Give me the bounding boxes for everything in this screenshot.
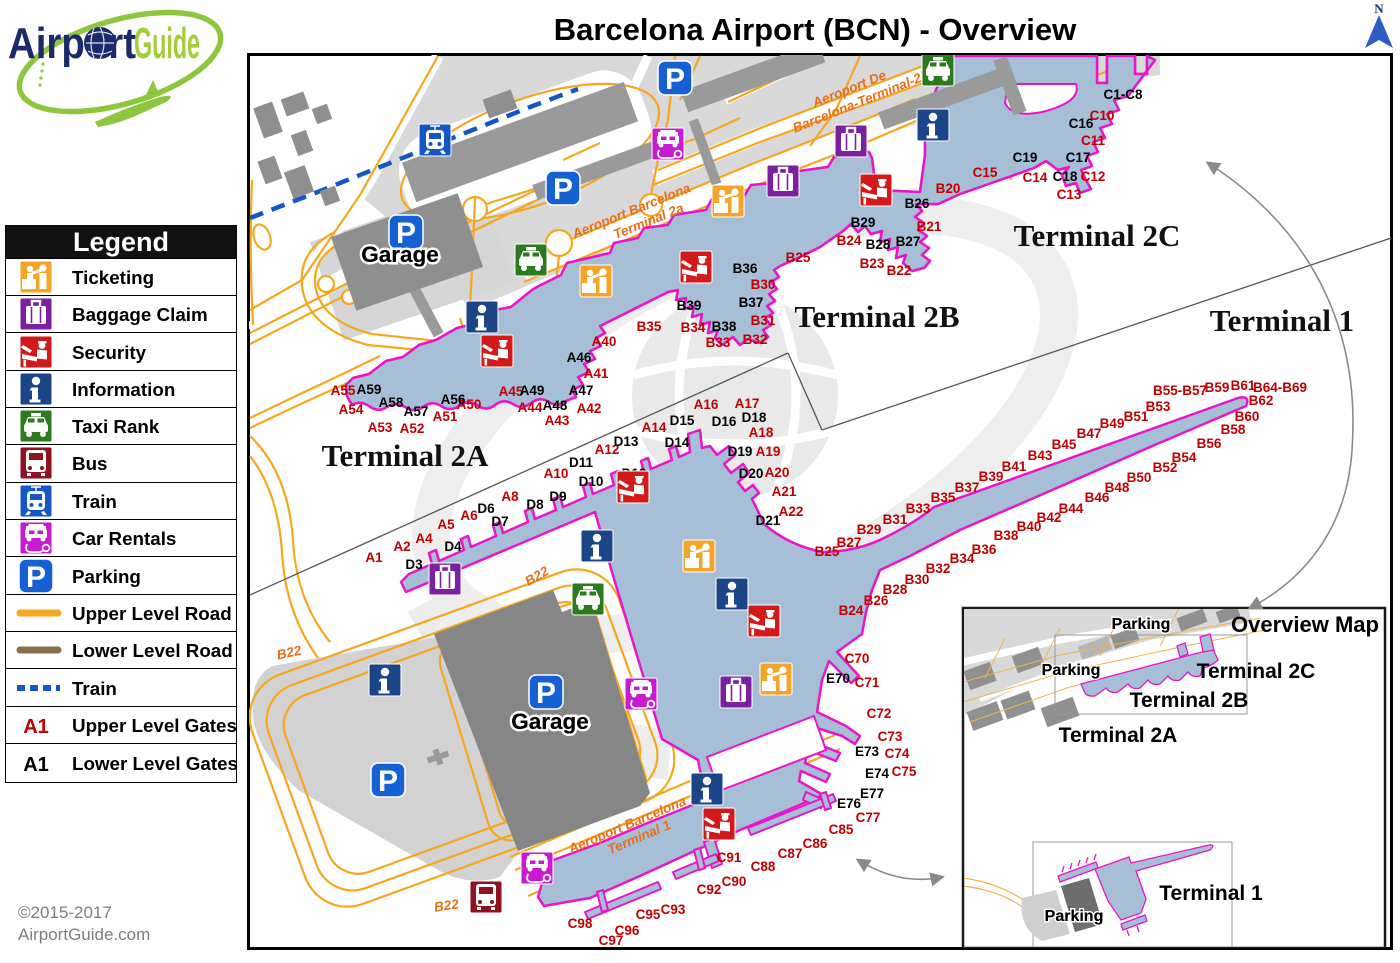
svg-text:A14: A14: [642, 420, 667, 435]
svg-text:B34: B34: [950, 551, 975, 566]
svg-text:Train: Train: [72, 491, 117, 512]
svg-text:A5: A5: [437, 517, 455, 532]
svg-text:Garage: Garage: [511, 709, 589, 734]
svg-text:D18: D18: [742, 410, 767, 425]
svg-text:D14: D14: [665, 435, 690, 450]
svg-text:A52: A52: [400, 421, 425, 436]
svg-text:Overview Map: Overview Map: [1231, 612, 1379, 637]
svg-text:B37: B37: [739, 295, 764, 310]
svg-text:C93: C93: [661, 902, 686, 917]
svg-text:B38: B38: [994, 528, 1019, 543]
svg-text:A2: A2: [393, 539, 410, 554]
svg-text:Ticketing: Ticketing: [72, 267, 154, 288]
svg-text:A20: A20: [765, 465, 790, 480]
svg-text:B44: B44: [1059, 501, 1084, 516]
svg-text:B33: B33: [906, 501, 931, 516]
svg-text:N: N: [1374, 1, 1384, 16]
svg-text:E77: E77: [860, 786, 884, 801]
svg-text:B53: B53: [1146, 399, 1171, 414]
svg-text:B31: B31: [751, 313, 776, 328]
svg-text:AirportGuide.com: AirportGuide.com: [18, 925, 150, 944]
svg-text:A41: A41: [584, 366, 609, 381]
svg-text:C13: C13: [1057, 187, 1082, 202]
svg-text:A21: A21: [772, 484, 797, 499]
svg-text:©2015-2017: ©2015-2017: [18, 903, 112, 922]
svg-text:B21: B21: [917, 219, 942, 234]
svg-text:B55-B57: B55-B57: [1153, 383, 1207, 398]
svg-text:C86: C86: [803, 836, 828, 851]
svg-text:Garage: Garage: [361, 242, 439, 267]
svg-text:A22: A22: [779, 504, 804, 519]
svg-text:B39: B39: [677, 298, 702, 313]
svg-text:D4: D4: [444, 539, 462, 554]
svg-text:C87: C87: [778, 846, 803, 861]
svg-text:C70: C70: [845, 651, 870, 666]
svg-text:A18: A18: [749, 425, 774, 440]
svg-text:Legend: Legend: [73, 227, 169, 257]
svg-text:B28: B28: [866, 237, 891, 252]
svg-text:B27: B27: [896, 234, 921, 249]
svg-text:B30: B30: [905, 572, 930, 587]
svg-text:B43: B43: [1028, 448, 1053, 463]
svg-text:C16: C16: [1069, 116, 1094, 131]
svg-text:Parking: Parking: [1112, 616, 1171, 633]
svg-text:D7: D7: [491, 514, 508, 529]
svg-text:C85: C85: [829, 822, 854, 837]
svg-text:D9: D9: [549, 489, 566, 504]
svg-text:Terminal 2C: Terminal 2C: [1197, 660, 1316, 683]
svg-text:B33: B33: [706, 335, 731, 350]
svg-text:C75: C75: [892, 764, 917, 779]
svg-text:D10: D10: [579, 474, 604, 489]
svg-text:Security: Security: [72, 342, 147, 363]
svg-text:A55: A55: [331, 383, 356, 398]
svg-text:D15: D15: [670, 413, 695, 428]
svg-text:C97: C97: [599, 933, 624, 948]
svg-text:B26: B26: [905, 196, 930, 211]
svg-text:A42: A42: [577, 401, 602, 416]
svg-text:C77: C77: [856, 810, 881, 825]
svg-text:A54: A54: [339, 402, 364, 417]
svg-text:D13: D13: [614, 434, 639, 449]
svg-text:B62: B62: [1249, 393, 1274, 408]
svg-text:C18: C18: [1053, 169, 1078, 184]
svg-text:Parking: Parking: [1042, 662, 1101, 679]
svg-text:B47: B47: [1077, 426, 1102, 441]
svg-text:B30: B30: [751, 277, 776, 292]
svg-text:A47: A47: [569, 383, 594, 398]
svg-text:Upper Level Gates: Upper Level Gates: [72, 715, 237, 736]
svg-text:Parking: Parking: [1045, 908, 1104, 925]
svg-text:Upper Level Road: Upper Level Road: [72, 603, 232, 624]
svg-text:B40: B40: [1017, 519, 1042, 534]
svg-text:E73: E73: [855, 744, 880, 759]
svg-text:B36: B36: [733, 261, 758, 276]
svg-text:B27: B27: [837, 535, 862, 550]
svg-text:A6: A6: [460, 508, 478, 523]
svg-text:C98: C98: [568, 916, 593, 931]
svg-text:E70: E70: [826, 671, 850, 686]
svg-text:A4: A4: [415, 531, 433, 546]
svg-text:A8: A8: [501, 489, 519, 504]
svg-text:A1: A1: [365, 550, 383, 565]
svg-text:C19: C19: [1013, 150, 1038, 165]
svg-text:B31: B31: [883, 512, 908, 527]
svg-text:Car Rentals: Car Rentals: [72, 528, 176, 549]
svg-text:C91: C91: [717, 850, 742, 865]
svg-text:B24: B24: [839, 603, 864, 618]
svg-text:E76: E76: [837, 796, 862, 811]
svg-text:A46: A46: [567, 350, 592, 365]
svg-text:C90: C90: [722, 874, 747, 889]
svg-text:C88: C88: [751, 859, 776, 874]
svg-text:Terminal 2C: Terminal 2C: [1014, 218, 1181, 253]
svg-text:A48: A48: [543, 398, 568, 413]
svg-text:E74: E74: [865, 766, 890, 781]
svg-text:B39: B39: [979, 469, 1004, 484]
svg-text:Information: Information: [72, 379, 175, 400]
svg-text:A44: A44: [518, 400, 543, 415]
svg-text:Terminal 2B: Terminal 2B: [1130, 689, 1249, 712]
svg-text:C74: C74: [885, 746, 910, 761]
svg-text:Lower Level Road: Lower Level Road: [72, 640, 233, 661]
svg-text:A16: A16: [694, 397, 719, 412]
svg-text:B59: B59: [1205, 380, 1230, 395]
svg-text:Guide: Guide: [134, 19, 200, 68]
svg-text:C92: C92: [697, 882, 722, 897]
svg-text:B35: B35: [637, 319, 662, 334]
svg-text:B38: B38: [712, 319, 737, 334]
svg-text:B29: B29: [851, 215, 876, 230]
svg-text:B25: B25: [786, 250, 811, 265]
svg-text:A10: A10: [544, 466, 569, 481]
svg-text:B45: B45: [1052, 437, 1077, 452]
svg-text:Terminal 1: Terminal 1: [1159, 882, 1263, 905]
svg-text:D21: D21: [756, 513, 781, 528]
svg-text:B37: B37: [955, 480, 980, 495]
svg-text:A43: A43: [545, 413, 570, 428]
svg-text:Baggage Claim: Baggage Claim: [72, 304, 208, 325]
svg-text:B24: B24: [837, 233, 862, 248]
svg-text:B23: B23: [860, 256, 885, 271]
svg-text:Barcelona Airport (BCN) - Over: Barcelona Airport (BCN) - Overview: [554, 12, 1077, 47]
svg-text:D20: D20: [739, 466, 764, 481]
svg-text:C14: C14: [1023, 170, 1048, 185]
svg-text:B32: B32: [743, 332, 768, 347]
svg-text:B50: B50: [1127, 470, 1152, 485]
svg-text:A51: A51: [433, 409, 458, 424]
svg-text:B58: B58: [1221, 422, 1246, 437]
svg-text:A57: A57: [404, 404, 429, 419]
svg-text:B46: B46: [1085, 490, 1110, 505]
svg-text:Parking: Parking: [72, 566, 141, 587]
svg-text:Lower Level Gates: Lower Level Gates: [72, 753, 238, 774]
svg-text:B26: B26: [864, 593, 889, 608]
svg-text:Airport: Airport: [8, 19, 136, 68]
svg-text:B56: B56: [1197, 436, 1222, 451]
svg-text:C17: C17: [1066, 150, 1091, 165]
svg-text:C73: C73: [878, 729, 903, 744]
svg-text:B41: B41: [1002, 459, 1027, 474]
svg-text:C1-C8: C1-C8: [1103, 87, 1143, 102]
svg-text:C72: C72: [867, 706, 892, 721]
svg-text:Bus: Bus: [72, 453, 107, 474]
svg-text:A1: A1: [23, 754, 49, 776]
svg-text:A53: A53: [368, 420, 393, 435]
svg-text:A49: A49: [520, 383, 545, 398]
svg-text:A19: A19: [756, 444, 781, 459]
svg-text:B52: B52: [1153, 460, 1178, 475]
svg-text:B20: B20: [936, 181, 961, 196]
svg-text:Taxi Rank: Taxi Rank: [72, 416, 160, 437]
svg-text:Terminal 2A: Terminal 2A: [322, 438, 489, 473]
svg-text:C15: C15: [973, 165, 998, 180]
svg-text:C95: C95: [636, 907, 661, 922]
svg-text:Train: Train: [72, 678, 117, 699]
svg-text:A40: A40: [592, 334, 617, 349]
svg-text:B35: B35: [931, 490, 956, 505]
svg-text:D16: D16: [712, 414, 737, 429]
svg-text:A56: A56: [441, 392, 466, 407]
svg-text:C71: C71: [855, 675, 880, 690]
svg-text:Terminal 2A: Terminal 2A: [1059, 724, 1178, 747]
svg-text:B34: B34: [681, 320, 706, 335]
svg-text:A1: A1: [23, 716, 49, 738]
svg-text:D19: D19: [728, 444, 753, 459]
svg-text:D11: D11: [569, 455, 594, 470]
svg-text:A58: A58: [379, 395, 404, 410]
svg-text:B49: B49: [1100, 416, 1125, 431]
svg-text:B36: B36: [972, 542, 997, 557]
svg-text:Terminal 2B: Terminal 2B: [794, 299, 959, 334]
svg-text:B22: B22: [887, 263, 912, 278]
svg-text:A17: A17: [735, 396, 760, 411]
svg-text:D3: D3: [405, 557, 423, 572]
svg-text:D8: D8: [526, 497, 544, 512]
svg-text:C11: C11: [1081, 133, 1106, 148]
svg-text:C12: C12: [1081, 169, 1106, 184]
